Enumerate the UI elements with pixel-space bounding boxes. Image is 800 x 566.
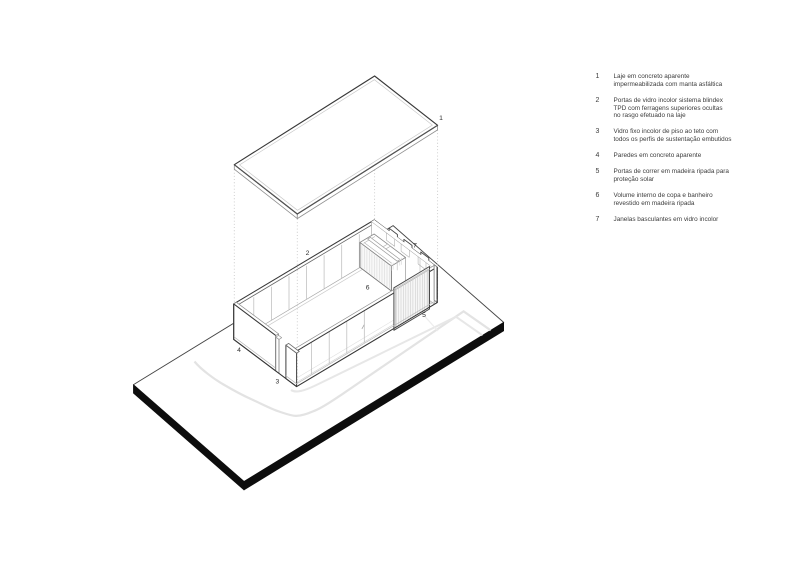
svg-text:2: 2 <box>306 250 310 257</box>
svg-text:7: 7 <box>413 243 417 250</box>
svg-text:5: 5 <box>422 312 426 319</box>
svg-text:1: 1 <box>439 115 443 122</box>
svg-text:6: 6 <box>366 284 370 291</box>
svg-text:4: 4 <box>237 347 241 354</box>
svg-text:3: 3 <box>276 378 280 385</box>
